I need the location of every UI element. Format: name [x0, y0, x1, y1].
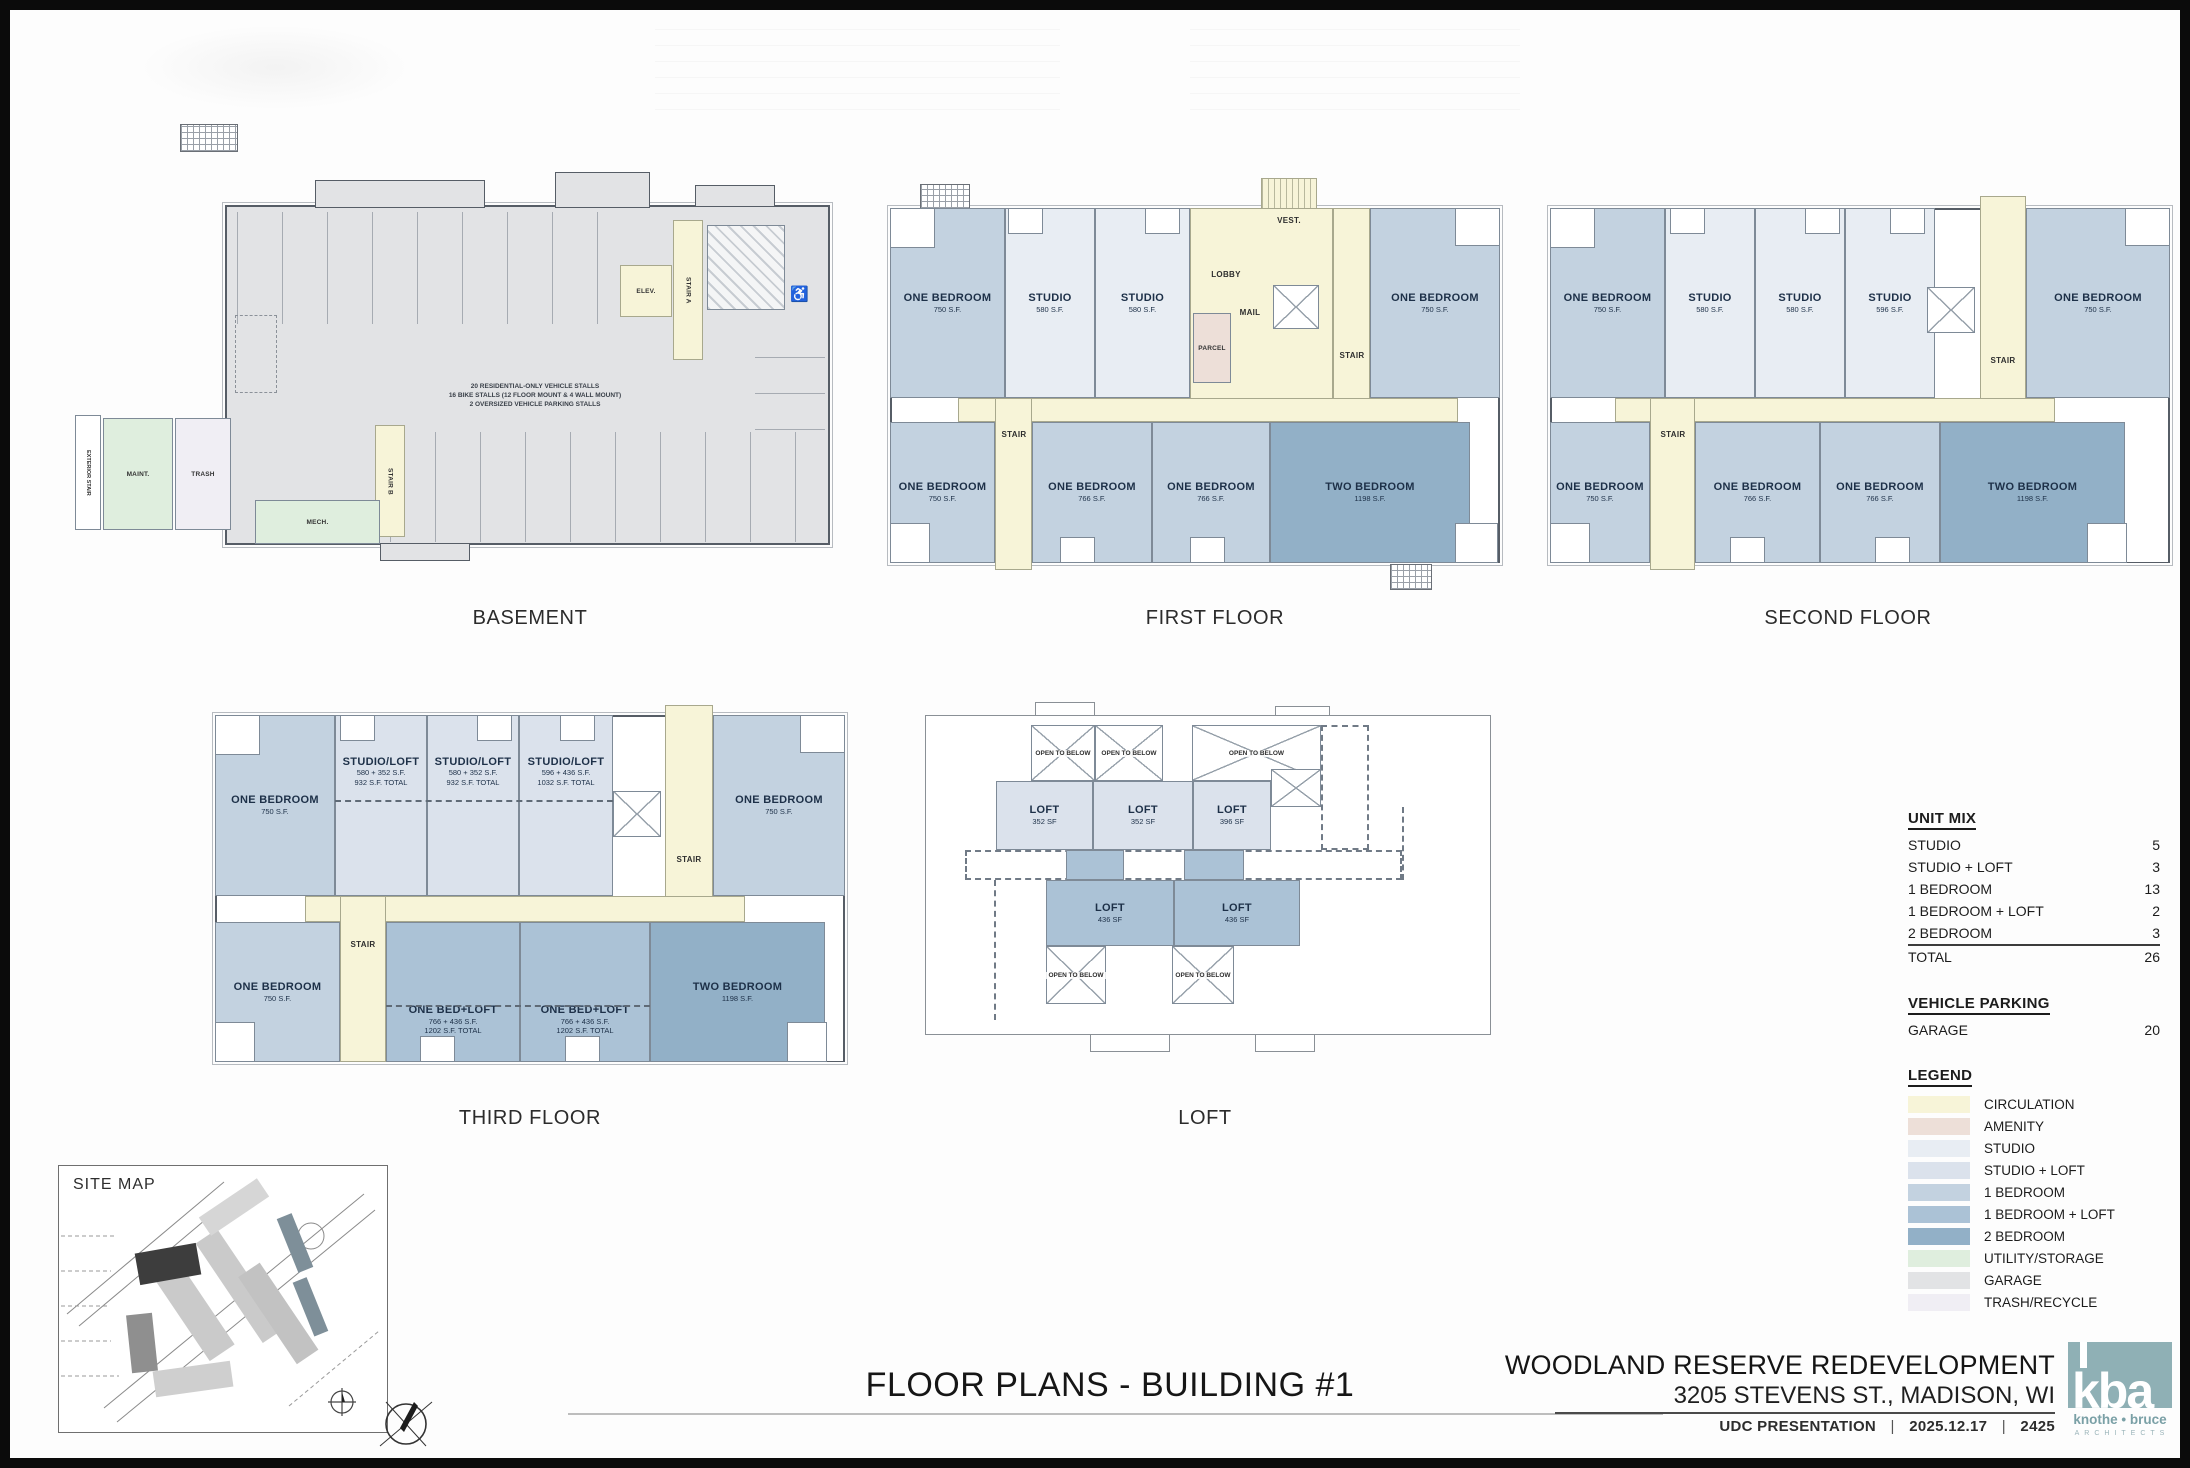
legend-label: GARAGE — [1984, 1273, 2042, 1288]
total-value: 26 — [2144, 946, 2160, 968]
floor-below-dashed-line — [1402, 807, 1404, 880]
unit-sf: 750 S.F. — [765, 808, 793, 817]
unit-label: ONE BEDROOM 766 S.F. — [1714, 481, 1802, 503]
garage-bump — [555, 172, 650, 208]
unit-sf: 766 S.F. — [1197, 495, 1225, 504]
unit-studio: STUDIO 596 S.F. — [1845, 208, 1935, 398]
unit-sf: 596 S.F. — [1876, 306, 1904, 315]
unit-label: ONE BEDROOM 750 S.F. — [231, 794, 319, 816]
wall-notch — [1890, 208, 1925, 234]
legend-swatch — [1908, 1118, 1970, 1135]
loft-title: LOFT — [1055, 1107, 1355, 1130]
wall-notch — [800, 715, 845, 753]
row-label: 2 BEDROOM — [1908, 922, 1992, 944]
loft-edge-dashed-line — [335, 800, 613, 802]
vehicle-parking-table: VEHICLE PARKING GARAGE 20 — [1908, 995, 2160, 1041]
unit-loft: LOFT 436 SF — [1046, 880, 1174, 946]
row-value: 20 — [2144, 1019, 2160, 1041]
wall-notch — [890, 523, 930, 563]
stair-b-label: STAIR B — [387, 468, 394, 495]
unit-label: STUDIO 596 S.F. — [1868, 292, 1911, 314]
loft-tab — [1066, 850, 1124, 880]
mech-room: MECH. — [255, 500, 380, 544]
unit-sf: 1198 S.F. — [722, 995, 753, 1004]
wall-notch — [560, 715, 595, 741]
mech-label: MECH. — [307, 519, 329, 526]
unit-name: STUDIO — [1778, 292, 1821, 305]
unit-loft: LOFT 352 SF — [1093, 781, 1193, 850]
legend-label: 1 BEDROOM + LOFT — [1984, 1207, 2115, 1222]
unit-name: LOFT — [1095, 902, 1125, 915]
garage-bump — [380, 543, 470, 561]
unit-name: STUDIO — [1028, 292, 1071, 305]
mail-label: MAIL — [1225, 308, 1275, 317]
elevator-shaft — [1927, 287, 1975, 333]
project-number: 2425 — [2020, 1418, 2055, 1435]
third-floor-plan: ONE BEDROOM 750 S.F. STUDIO/LOFT 580 + 3… — [215, 700, 845, 1072]
unit-label: STUDIO/LOFT 580 + 352 S.F. 932 S.F. TOTA… — [343, 756, 420, 788]
legend-item: TRASH/RECYCLE — [1908, 1291, 2160, 1313]
wall-notch — [2125, 208, 2170, 246]
garage-note-line: 16 BIKE STALLS (12 FLOOR MOUNT & 4 WALL … — [405, 392, 665, 401]
unit-name: STUDIO/LOFT — [435, 756, 512, 769]
core-dashed-outline — [1321, 725, 1369, 850]
legend-item: STUDIO — [1908, 1137, 2160, 1159]
kba-logo-block: kba — [2068, 1342, 2172, 1408]
legend-swatch — [1908, 1228, 1970, 1245]
grate-detail — [920, 184, 970, 209]
unit-name: TWO BEDROOM — [1988, 481, 2077, 494]
stair-shaft — [1650, 398, 1695, 570]
open-to-below: OPEN TO BELOW — [1046, 946, 1106, 1004]
north-arrow-icon — [374, 1392, 438, 1456]
garage-note: 20 RESIDENTIAL-ONLY VEHICLE STALLS 16 BI… — [405, 383, 665, 409]
open-to-below-label: OPEN TO BELOW — [1099, 750, 1158, 757]
second-floor-plan: ONE BEDROOM 750 S.F. STUDIO 580 S.F. STU… — [1550, 178, 2170, 570]
unit-loft: LOFT 352 SF — [996, 781, 1093, 850]
wall-notch — [2087, 523, 2127, 563]
unit-name: ONE BEDROOM — [2054, 292, 2142, 305]
exterior-stair: EXTERIOR STAIR — [75, 415, 101, 530]
legend-label: 1 BEDROOM — [1984, 1185, 2065, 1200]
open-to-below-label: OPEN TO BELOW — [1033, 750, 1092, 757]
row-value: 2 — [2152, 900, 2160, 922]
loft-plan: OPEN TO BELOW OPEN TO BELOW OPEN TO BELO… — [885, 700, 1500, 1072]
unit-name: STUDIO — [1121, 292, 1164, 305]
unit-studio: STUDIO 580 S.F. — [1665, 208, 1755, 398]
unit-label: STUDIO 580 S.F. — [1778, 292, 1821, 314]
parking-stalls — [755, 355, 825, 430]
legend-label: AMENITY — [1984, 1119, 2044, 1134]
unit-total: 932 S.F. TOTAL — [447, 779, 500, 788]
legend-item: UTILITY/STORAGE — [1908, 1247, 2160, 1269]
wall-notch — [340, 715, 375, 741]
unit-label: LOFT 436 SF — [1222, 902, 1252, 924]
garage-bump — [315, 180, 485, 208]
basement-title: BASEMENT — [380, 607, 680, 630]
unit-studio-loft: STUDIO/LOFT 580 + 352 S.F. 932 S.F. TOTA… — [335, 715, 427, 896]
unit-studio: STUDIO 580 S.F. — [1095, 208, 1190, 398]
unit-label: TWO BEDROOM 1198 S.F. — [1325, 481, 1414, 503]
unit-sf: 766 + 436 S.F. — [429, 1018, 478, 1027]
unit-name: LOFT — [1222, 902, 1252, 915]
unit-label: ONE BEDROOM 766 S.F. — [1167, 481, 1255, 503]
legend-swatch — [1908, 1096, 1970, 1113]
wall-notch — [1145, 208, 1180, 234]
wall-notch — [1550, 208, 1595, 248]
accessible-parking-icon: ♿ — [790, 285, 809, 303]
separator: | — [1891, 1418, 1895, 1435]
total-label: TOTAL — [1908, 946, 1952, 968]
unit-name: ONE BEDROOM — [1836, 481, 1924, 494]
unit-two-bedroom: TWO BEDROOM 1198 S.F. — [1270, 422, 1470, 563]
elevator-shaft — [1271, 769, 1321, 807]
unit-name: TWO BEDROOM — [693, 981, 782, 994]
unit-sf: 766 S.F. — [1866, 495, 1894, 504]
unit-loft: LOFT 396 SF — [1193, 781, 1271, 850]
presentation-label: UDC PRESENTATION — [1719, 1418, 1876, 1435]
project-address: 3205 STEVENS ST., MADISON, WI — [1260, 1382, 2055, 1410]
unit-sf: 750 S.F. — [1586, 495, 1614, 504]
parcel-room: PARCEL — [1193, 313, 1231, 383]
unit-sf: 750 S.F. — [264, 995, 292, 1004]
wall-notch — [477, 715, 512, 741]
unit-sf: 750 S.F. — [2084, 306, 2112, 315]
legend-item: 1 BEDROOM — [1908, 1181, 2160, 1203]
unit-name: ONE BEDROOM — [231, 794, 319, 807]
legend-swatch — [1908, 1140, 1970, 1157]
exterior-void — [826, 923, 843, 1061]
wall-notch — [215, 1022, 255, 1062]
row-label: STUDIO — [1908, 834, 1961, 856]
unit-sf: 750 S.F. — [1421, 306, 1449, 315]
table-row: 2 BEDROOM 3 — [1908, 922, 2160, 946]
reserved-zone — [235, 315, 277, 393]
wall-notch — [1730, 537, 1765, 563]
elevator-label: ELEV. — [636, 288, 655, 295]
legend-item: AMENITY — [1908, 1115, 2160, 1137]
legend: LEGEND CIRCULATION AMENITY STUDIO STUDIO… — [1908, 1067, 2160, 1313]
title-block-row: UDC PRESENTATION | 2025.12.17 | 2425 — [1555, 1418, 2055, 1435]
legend-label: UTILITY/STORAGE — [1984, 1251, 2104, 1266]
wall-notch — [215, 715, 260, 755]
unit-sf: 580 + 352 S.F. — [449, 769, 498, 778]
stair-label: STAIR — [1648, 430, 1698, 439]
outline-tab — [1035, 702, 1095, 716]
first-floor-plan: ONE BEDROOM 750 S.F. STUDIO 580 S.F. STU… — [890, 178, 1500, 570]
logo-letters: kba — [2072, 1366, 2152, 1408]
row-label: 1 BEDROOM — [1908, 878, 1992, 900]
legend-swatch — [1908, 1206, 1970, 1223]
unit-sf: 352 SF — [1032, 818, 1056, 827]
unit-label: STUDIO/LOFT 596 + 436 S.F. 1032 S.F. TOT… — [528, 756, 605, 788]
unit-name: ONE BEDROOM — [234, 981, 322, 994]
unit-sf: 1198 S.F. — [2017, 495, 2048, 504]
grate-detail — [1390, 564, 1432, 590]
unit-name: ONE BEDROOM — [904, 292, 992, 305]
legend-title: LEGEND — [1908, 1067, 1972, 1087]
unit-label: ONE BEDROOM 750 S.F. — [899, 481, 987, 503]
open-to-below-label: OPEN TO BELOW — [1173, 972, 1232, 979]
open-to-below: OPEN TO BELOW — [1031, 725, 1095, 781]
wall-notch — [1190, 537, 1225, 563]
unit-sf: 436 SF — [1225, 916, 1249, 925]
vestibule-bump — [1261, 178, 1317, 209]
title-rule — [568, 1413, 1663, 1415]
unit-total: 1202 S.F. TOTAL — [424, 1027, 481, 1036]
wall-notch — [890, 208, 935, 248]
unit-name: LOFT — [1128, 804, 1158, 817]
trash-label: TRASH — [191, 471, 214, 478]
parcel-label: PARCEL — [1198, 345, 1225, 352]
unit-label: ONE BEDROOM 766 S.F. — [1048, 481, 1136, 503]
unit-name: ONE BEDROOM — [1556, 481, 1644, 494]
legend-label: 2 BEDROOM — [1984, 1229, 2065, 1244]
wall-notch — [1060, 537, 1095, 563]
unit-sf: 580 S.F. — [1786, 306, 1814, 315]
logo-firm-name: knothe • bruce — [2068, 1412, 2172, 1427]
legend-label: STUDIO — [1984, 1141, 2035, 1156]
legend-swatch — [1908, 1294, 1970, 1311]
ghost-artifact — [655, 24, 1060, 110]
row-label: STUDIO + LOFT — [1908, 856, 2013, 878]
loft-tab — [1184, 850, 1244, 880]
unit-mix-title: UNIT MIX — [1908, 810, 1976, 830]
elevator-shaft — [613, 791, 661, 837]
unit-label: STUDIO 580 S.F. — [1028, 292, 1071, 314]
legend-swatch — [1908, 1162, 1970, 1179]
legend-label: STUDIO + LOFT — [1984, 1163, 2085, 1178]
logo-subtitle: ARCHITECTS — [2070, 1430, 2174, 1437]
stair-shaft — [665, 705, 713, 922]
corridor — [958, 398, 1458, 422]
kba-logo: kba knothe • bruce ARCHITECTS — [2068, 1342, 2172, 1454]
basement-plan: 20 RESIDENTIAL-ONLY VEHICLE STALLS 16 BI… — [75, 150, 855, 605]
stair-label: STAIR — [338, 940, 388, 949]
lobby-label: LOBBY — [1195, 270, 1257, 279]
maint-room: MAINT. — [103, 418, 173, 530]
unit-label: STUDIO 580 S.F. — [1121, 292, 1164, 314]
site-map-label: SITE MAP — [73, 1176, 156, 1194]
open-to-below: OPEN TO BELOW — [1172, 946, 1234, 1004]
unit-label: ONE BEDROOM 750 S.F. — [904, 292, 992, 314]
row-value: 3 — [2152, 856, 2160, 878]
ghost-artifact — [140, 25, 410, 110]
open-to-below: OPEN TO BELOW — [1095, 725, 1163, 781]
stair-label: STAIR — [664, 855, 714, 864]
legend-item: CIRCULATION — [1908, 1093, 2160, 1115]
wall-notch — [1455, 523, 1498, 563]
row-value: 5 — [2152, 834, 2160, 856]
exterior-stair-label: EXTERIOR STAIR — [85, 450, 91, 496]
wall-notch — [1875, 537, 1910, 563]
wall-notch — [1550, 523, 1590, 563]
stair-a-label: STAIR A — [685, 277, 692, 304]
table-row: 1 BEDROOM + LOFT 2 — [1908, 900, 2160, 922]
stair-shaft — [340, 896, 386, 1062]
unit-sf: 580 + 352 S.F. — [357, 769, 406, 778]
legend-item: STUDIO + LOFT — [1908, 1159, 2160, 1181]
legend-swatch — [1908, 1250, 1970, 1267]
unit-label: ONE BEDROOM 750 S.F. — [1391, 292, 1479, 314]
row-value: 3 — [2152, 922, 2160, 944]
outline-tab — [1090, 1034, 1170, 1052]
exterior-void — [2126, 423, 2168, 562]
legend-item: 1 BEDROOM + LOFT — [1908, 1203, 2160, 1225]
unit-sf: 580 S.F. — [1696, 306, 1724, 315]
row-label: GARAGE — [1908, 1019, 1968, 1041]
stair-a: STAIR A — [673, 220, 703, 360]
elevator-shaft — [1273, 285, 1319, 329]
unit-label: LOFT 396 SF — [1217, 804, 1247, 826]
legend-label: CIRCULATION — [1984, 1097, 2075, 1112]
legend-item: 2 BEDROOM — [1908, 1225, 2160, 1247]
unit-total: 932 S.F. TOTAL — [355, 779, 408, 788]
unit-name: STUDIO/LOFT — [343, 756, 420, 769]
legend-item: GARAGE — [1908, 1269, 2160, 1291]
vehicle-parking-title: VEHICLE PARKING — [1908, 995, 2050, 1015]
legend-swatch — [1908, 1184, 1970, 1201]
unit-sf: 750 S.F. — [1594, 306, 1622, 315]
unit-name: STUDIO — [1868, 292, 1911, 305]
unit-name: ONE BEDROOM — [1167, 481, 1255, 494]
unit-sf: 580 S.F. — [1129, 306, 1157, 315]
unit-name: STUDIO — [1688, 292, 1731, 305]
unit-label: ONE BEDROOM 750 S.F. — [735, 794, 823, 816]
table-row: 1 BEDROOM 13 — [1908, 878, 2160, 900]
wall-notch — [420, 1036, 455, 1062]
unit-label: STUDIO 580 S.F. — [1688, 292, 1731, 314]
stair-shaft — [1333, 208, 1370, 422]
grate-detail — [180, 124, 238, 152]
unit-label: TWO BEDROOM 1198 S.F. — [1988, 481, 2077, 503]
unit-name: ONE BEDROOM — [1391, 292, 1479, 305]
parking-stalls — [390, 432, 820, 542]
unit-sf: 396 SF — [1220, 818, 1244, 827]
loft-edge-dashed-line — [386, 1005, 650, 1007]
unit-label: TWO BEDROOM 1198 S.F. — [693, 981, 782, 1003]
ghost-artifact — [1190, 24, 1520, 110]
table-row: STUDIO 5 — [1908, 834, 2160, 856]
unit-label: ONE BEDROOM 766 S.F. — [1836, 481, 1924, 503]
presentation-date: 2025.12.17 — [1909, 1418, 1987, 1435]
unit-name: ONE BEDROOM — [1048, 481, 1136, 494]
outline-tab — [1275, 706, 1330, 716]
hatched-area — [707, 225, 785, 310]
unit-studio-loft: STUDIO/LOFT 580 + 352 S.F. 932 S.F. TOTA… — [427, 715, 519, 896]
unit-name: ONE BEDROOM — [899, 481, 987, 494]
unit-name: LOFT — [1030, 804, 1060, 817]
wall-notch — [787, 1022, 827, 1062]
unit-label: LOFT 352 SF — [1030, 804, 1060, 826]
unit-name: ONE BEDROOM — [1564, 292, 1652, 305]
unit-sf: 1198 S.F. — [1354, 495, 1385, 504]
first-floor-title: FIRST FLOOR — [1065, 607, 1365, 630]
site-map-drawing — [59, 1166, 386, 1431]
vest-label: VEST. — [1262, 216, 1316, 225]
unit-name: TWO BEDROOM — [1325, 481, 1414, 494]
garage-note-line: 20 RESIDENTIAL-ONLY VEHICLE STALLS — [405, 383, 665, 392]
unit-studio: STUDIO 580 S.F. — [1005, 208, 1095, 398]
unit-label: ONE BED+LOFT 766 + 436 S.F. 1202 S.F. TO… — [409, 1004, 498, 1036]
legend-label: TRASH/RECYCLE — [1984, 1295, 2097, 1310]
unit-label: ONE BEDROOM 750 S.F. — [1564, 292, 1652, 314]
unit-total: 1032 S.F. TOTAL — [537, 779, 594, 788]
open-to-below-label: OPEN TO BELOW — [1046, 972, 1105, 979]
unit-label: LOFT 352 SF — [1128, 804, 1158, 826]
wall-notch — [1455, 208, 1500, 246]
unit-sf: 766 S.F. — [1744, 495, 1772, 504]
floor-below-dashed-line — [994, 880, 996, 1020]
unit-name: ONE BEDROOM — [735, 794, 823, 807]
unit-sf: 750 S.F. — [261, 808, 289, 817]
drawing-sheet: 20 RESIDENTIAL-ONLY VEHICLE STALLS 16 BI… — [10, 10, 2180, 1458]
unit-sf: 352 SF — [1131, 818, 1155, 827]
unit-name: ONE BEDROOM — [1714, 481, 1802, 494]
unit-label: STUDIO/LOFT 580 + 352 S.F. 932 S.F. TOTA… — [435, 756, 512, 788]
maint-label: MAINT. — [127, 471, 150, 478]
trash-room: TRASH — [175, 418, 231, 530]
stair-shaft — [995, 398, 1032, 570]
unit-total: 1202 S.F. TOTAL — [556, 1027, 613, 1036]
wall-notch — [1805, 208, 1840, 234]
unit-label: ONE BED+LOFT 766 + 436 S.F. 1202 S.F. TO… — [541, 1004, 630, 1036]
unit-mix-table: UNIT MIX STUDIO 5 STUDIO + LOFT 3 1 BEDR… — [1908, 810, 2160, 968]
wall-notch — [1670, 208, 1705, 234]
unit-studio: STUDIO 580 S.F. — [1755, 208, 1845, 398]
unit-sf: 766 + 436 S.F. — [561, 1018, 610, 1027]
stair-shaft — [1980, 196, 2026, 424]
unit-label: ONE BEDROOM 750 S.F. — [1556, 481, 1644, 503]
unit-sf: 596 + 436 S.F. — [542, 769, 591, 778]
row-value: 13 — [2144, 878, 2160, 900]
parking-stalls — [237, 212, 627, 324]
unit-sf: 580 S.F. — [1036, 306, 1064, 315]
unit-loft: LOFT 436 SF — [1174, 880, 1300, 946]
elevator-room: ELEV. — [620, 265, 672, 317]
table-row: GARAGE 20 — [1908, 1019, 2160, 1041]
second-floor-title: SECOND FLOOR — [1698, 607, 1998, 630]
outline-tab — [1255, 1034, 1315, 1052]
third-floor-title: THIRD FLOOR — [380, 1107, 680, 1130]
unit-sf: 436 SF — [1098, 916, 1122, 925]
unit-label: LOFT 436 SF — [1095, 902, 1125, 924]
open-to-below-label: OPEN TO BELOW — [1227, 750, 1286, 757]
unit-name: LOFT — [1217, 804, 1247, 817]
title-block-rule — [1555, 1412, 2055, 1414]
separator: | — [2002, 1418, 2006, 1435]
legend-swatch — [1908, 1272, 1970, 1289]
unit-sf: 766 S.F. — [1078, 495, 1106, 504]
unit-name: STUDIO/LOFT — [528, 756, 605, 769]
garage-note-line: 2 OVERSIZED VEHICLE PARKING STALLS — [405, 401, 665, 410]
unit-sf: 750 S.F. — [929, 495, 957, 504]
table-total-row: TOTAL 26 — [1908, 946, 2160, 968]
site-map: SITE MAP — [58, 1165, 388, 1433]
row-label: 1 BEDROOM + LOFT — [1908, 900, 2044, 922]
table-row: STUDIO + LOFT 3 — [1908, 856, 2160, 878]
wall-notch — [565, 1036, 600, 1062]
screenshot-root: { "page": { "title": "FLOOR PLANS - BUIL… — [0, 0, 2190, 1468]
unit-studio-loft: STUDIO/LOFT 596 + 436 S.F. 1032 S.F. TOT… — [519, 715, 613, 896]
unit-label: ONE BEDROOM 750 S.F. — [234, 981, 322, 1003]
unit-label: ONE BEDROOM 750 S.F. — [2054, 292, 2142, 314]
stair-label: STAIR — [1978, 356, 2028, 365]
wall-notch — [1008, 208, 1043, 234]
unit-sf: 750 S.F. — [934, 306, 962, 315]
project-name: WOODLAND RESERVE REDEVELOPMENT — [1260, 1350, 2055, 1381]
garage-bump — [695, 185, 775, 207]
